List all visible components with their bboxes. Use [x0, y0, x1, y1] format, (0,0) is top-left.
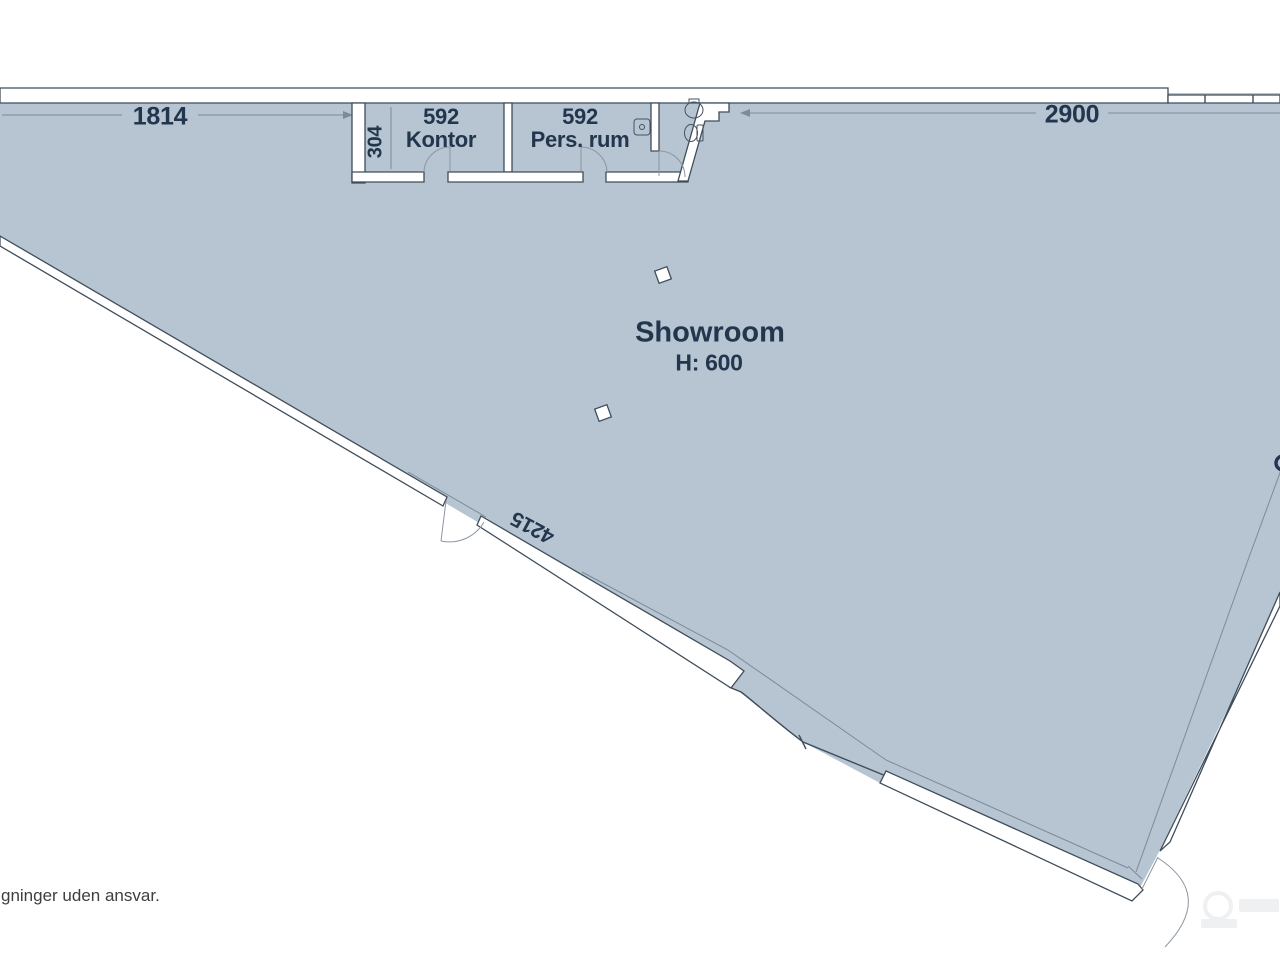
pers-rum-name-label: Pers. rum: [531, 127, 630, 153]
dimension-label-2900: 2900: [1045, 101, 1099, 130]
tip-door-swing: [1158, 858, 1188, 947]
kontor-pers-divider-wall: [504, 103, 512, 172]
kontor-name-label: Kontor: [406, 127, 476, 153]
kontor-west-wall: [352, 103, 365, 183]
watermark-logo: [1201, 893, 1279, 928]
room-south-wall: [448, 172, 583, 182]
room-south-wall: [352, 172, 424, 182]
floor-fill: [0, 88, 1280, 897]
top-wall-window-section: [1168, 95, 1280, 103]
dimension-label-304: 304: [365, 126, 388, 158]
top-wall: [0, 88, 1168, 103]
floor-plan-drawing: [0, 0, 1280, 960]
room-south-wall: [606, 172, 688, 182]
showroom-name-label: Showroom: [635, 317, 785, 350]
disclaimer-text: gninger uden ansvar.: [1, 886, 160, 906]
pers-wc-divider-wall: [651, 103, 659, 151]
showroom-height-label: H: 600: [675, 350, 742, 377]
dimension-label-1814: 1814: [133, 103, 187, 132]
